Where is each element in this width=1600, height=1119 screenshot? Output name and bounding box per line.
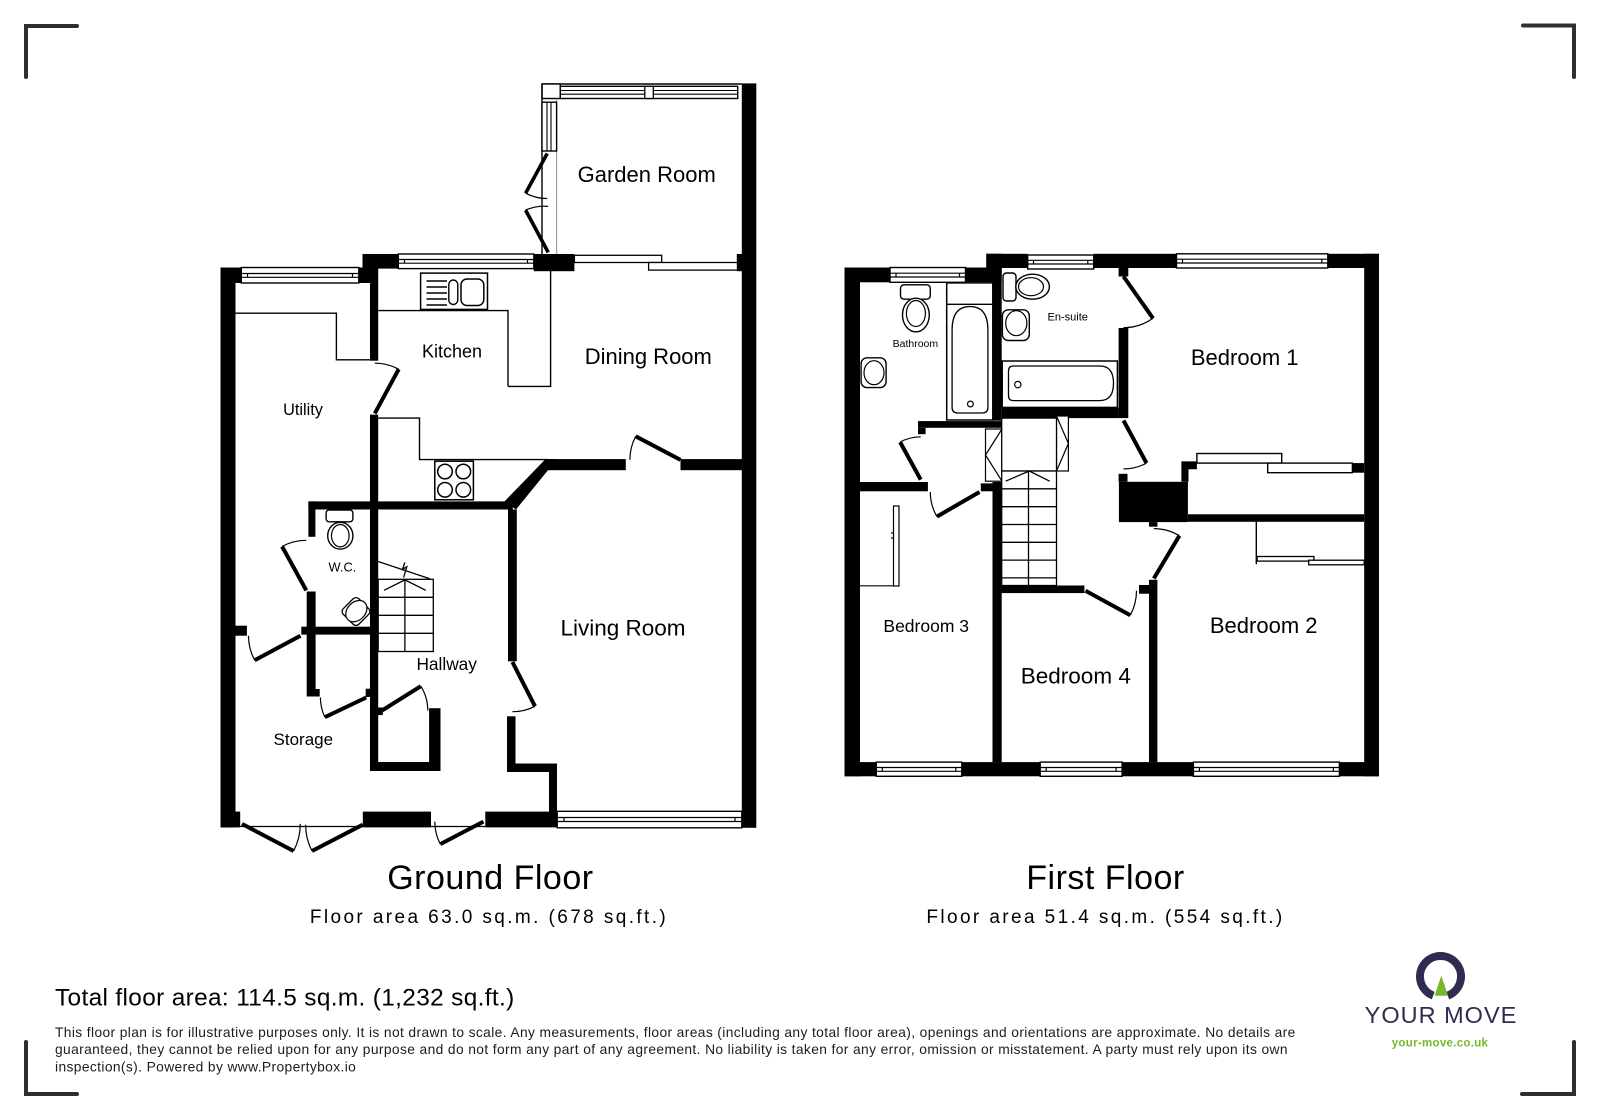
svg-text:Garden Room: Garden Room [578, 162, 716, 187]
svg-text:En-suite: En-suite [1048, 312, 1088, 324]
svg-text:your-move.co.uk: your-move.co.uk [1392, 1038, 1489, 1050]
svg-text:Living Room: Living Room [560, 616, 685, 641]
svg-text:Bathroom: Bathroom [893, 338, 939, 350]
svg-text:Kitchen: Kitchen [422, 342, 482, 362]
svg-text:Bedroom 2: Bedroom 2 [1210, 613, 1318, 638]
svg-text:Bedroom 1: Bedroom 1 [1191, 345, 1299, 370]
svg-text:Hallway: Hallway [416, 654, 477, 674]
svg-text:Storage: Storage [274, 730, 334, 749]
svg-text:guaranteed, they cannot be rel: guaranteed, they cannot be relied upon f… [55, 1042, 1288, 1057]
svg-text:Dining Room: Dining Room [585, 344, 712, 369]
svg-text:YOUR MOVE: YOUR MOVE [1365, 1002, 1518, 1028]
svg-text:Bedroom 3: Bedroom 3 [883, 616, 969, 636]
svg-text:This floor plan is for illustr: This floor plan is for illustrative purp… [55, 1025, 1296, 1040]
svg-text:Bedroom 4: Bedroom 4 [1021, 664, 1131, 689]
svg-text:Ground Floor: Ground Floor [387, 859, 593, 897]
svg-text:W.C.: W.C. [329, 560, 357, 575]
svg-text:Floor area 51.4 sq.m. (554 sq.: Floor area 51.4 sq.m. (554 sq.ft.) [926, 907, 1284, 928]
svg-text:First Floor: First Floor [1026, 859, 1185, 897]
svg-text:Total floor area: 114.5 sq.m.: Total floor area: 114.5 sq.m. (1,232 sq.… [55, 985, 515, 1012]
svg-text:inspection(s). Powered by www.: inspection(s). Powered by www.Propertybo… [55, 1060, 356, 1075]
svg-text:Floor area 63.0 sq.m. (678 sq.: Floor area 63.0 sq.m. (678 sq.ft.) [310, 907, 668, 928]
svg-text:Utility: Utility [283, 401, 324, 419]
